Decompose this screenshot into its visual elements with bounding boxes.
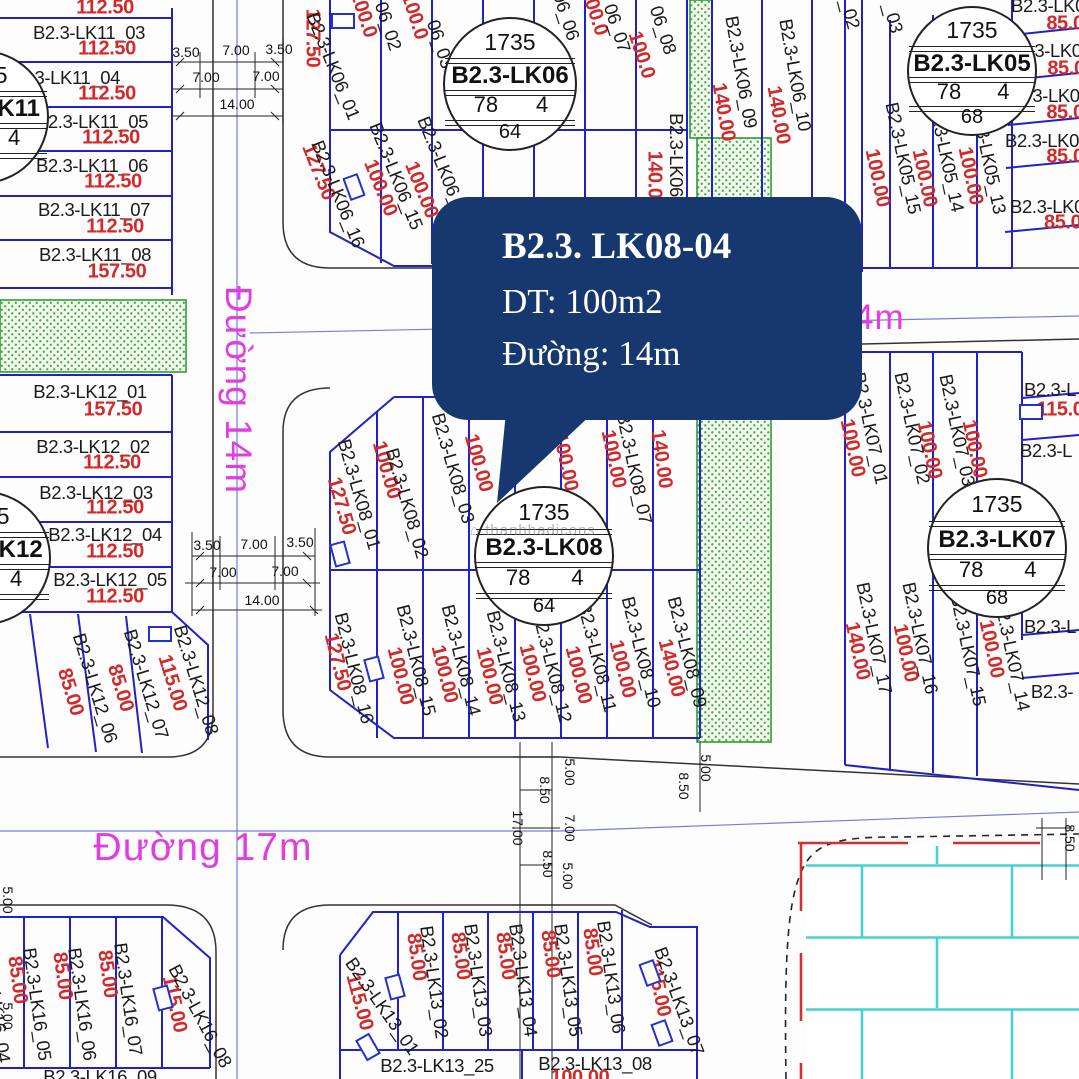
callout-road-width: Đường: 14m: [502, 334, 862, 374]
callout-plot-id: B2.3. LK08-04: [502, 225, 862, 268]
callout-area: DT: 100m2: [502, 282, 862, 322]
callout-tail: [0, 0, 1079, 1079]
plot-info-callout[interactable]: B2.3. LK08-04 DT: 100m2 Đường: 14m: [432, 197, 862, 420]
cadastral-map-canvas: 112.50B2.3-LK11_03112.50B2.3-LK11_04112.…: [0, 0, 1079, 1079]
